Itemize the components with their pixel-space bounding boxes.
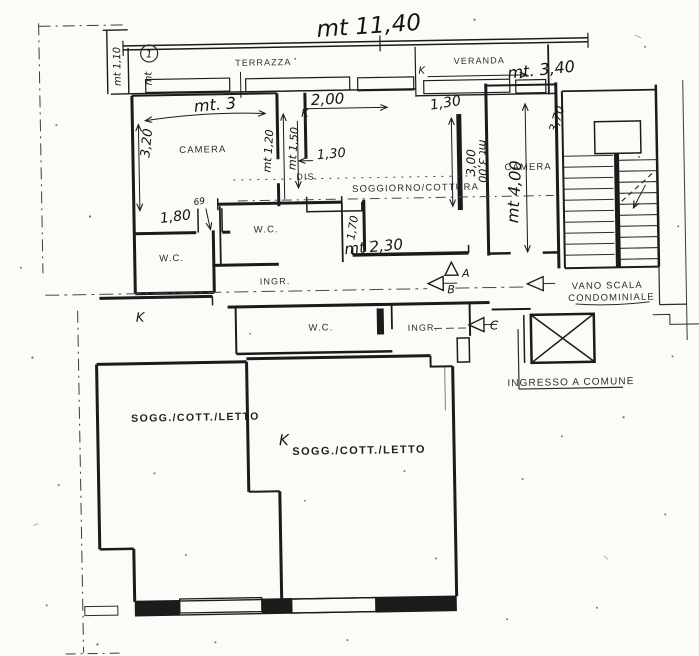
dim-total-width: mt 11,40 xyxy=(316,10,422,43)
dim-camera-width: mt. 3 xyxy=(193,93,237,116)
label-soggiorno-cottura: SOGGIORNO/COTTURA xyxy=(352,182,479,195)
label-wc-upper: W.C. xyxy=(254,224,279,235)
dim-wall-seg: 1,70 xyxy=(344,215,361,241)
label-sogg-center: SOGG./COTT./LETTO xyxy=(292,444,426,458)
floor-plan-svg: A B C TERRAZZA VERANDA CAMERA DIS. SOGGI… xyxy=(0,0,699,656)
dim-stair-side: 3,70 xyxy=(546,104,567,134)
label-vano-scala-1: VANO SCALA xyxy=(572,280,643,292)
label-ingr-lower: INGR. xyxy=(408,322,439,333)
section-a-label: A xyxy=(461,267,470,280)
label-dis: DIS. xyxy=(296,172,318,182)
k-mark-closet: K xyxy=(301,107,309,120)
dim-soggiorno-depth-b: mt 3,00 xyxy=(476,140,490,183)
dim-camera-right-depth: mt 4,00 xyxy=(503,160,525,223)
label-vano-scala-2: CONDOMINIALE xyxy=(568,292,655,305)
dim-terrace-note-number: 1 xyxy=(146,49,153,60)
section-lines xyxy=(43,174,556,335)
label-veranda: VERANDA xyxy=(454,55,505,66)
label-wc-lower: W.C. xyxy=(308,322,333,333)
label-ingr-upper: INGR. xyxy=(260,276,291,287)
dim-terrace-end: mt 1,10 xyxy=(112,47,124,86)
section-b-triangle xyxy=(428,276,443,290)
k-mark-lower-left: K xyxy=(136,311,146,326)
section-a-triangle xyxy=(445,262,458,275)
section-c-triangle xyxy=(469,318,484,332)
label-ingresso-comune: INGRESSO A COMUNE xyxy=(507,376,634,389)
dim-kitchen-span: 2,00 xyxy=(310,89,344,109)
section-c-label: C xyxy=(490,318,499,332)
dim-veranda-width: mt. 3,40 xyxy=(507,57,576,83)
dim-closet-depth: mt 1,20 xyxy=(260,129,276,173)
k-mark-lower-center: K xyxy=(279,431,290,449)
dim-door-top-right: 1,30 xyxy=(429,93,462,114)
label-sogg-left: SOGG./COTT./LETTO xyxy=(131,411,260,425)
stair-treads xyxy=(563,155,659,261)
section-markers: A B C xyxy=(428,261,499,333)
k-mark-veranda: K xyxy=(418,66,426,77)
scan-noise xyxy=(16,15,687,647)
label-wc-left: W.C. xyxy=(159,253,184,264)
dim-camera-depth: 3,20 xyxy=(138,128,156,158)
label-terrazza: TERRAZZA xyxy=(235,57,291,68)
dim-closet-width: mt 1,50 xyxy=(285,127,301,171)
dim-terrace-note-prefix: mt xyxy=(143,71,154,86)
lower-apartment-walls xyxy=(79,292,495,618)
floor-plan-scan: A B C TERRAZZA VERANDA CAMERA DIS. SOGGI… xyxy=(0,0,699,656)
dim-camera-door: 1,80 xyxy=(159,207,192,227)
label-camera-left: CAMERA xyxy=(179,144,226,156)
dim-door-small: 69 xyxy=(193,196,206,208)
dim-closet-door: 1,30 xyxy=(316,146,346,163)
section-b-label: B xyxy=(447,283,455,296)
